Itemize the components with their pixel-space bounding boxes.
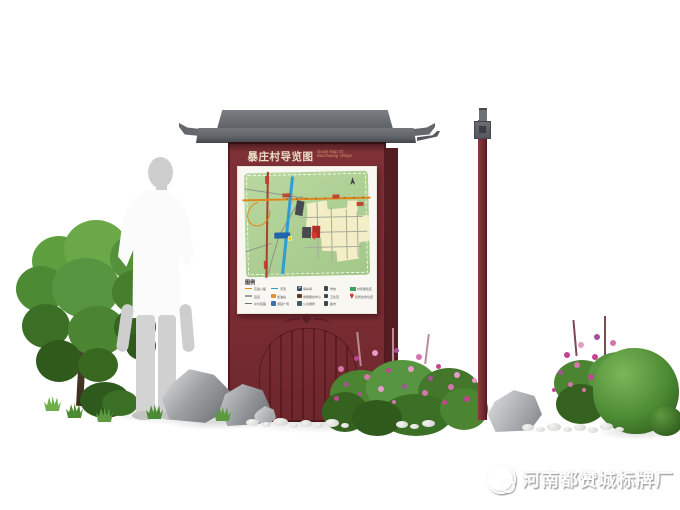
watermark: 河南都赞城标牌厂	[486, 460, 680, 498]
flower-dot	[422, 390, 428, 396]
legend-item: 乡村道路	[245, 301, 268, 306]
pebble	[547, 423, 561, 431]
flower-dot	[594, 334, 600, 340]
legend-item: 村民居住区	[350, 286, 373, 291]
sign-subtitle-en: Guide Map Of Baozhuang Village	[317, 150, 352, 158]
legend-item: 游园广场	[271, 301, 294, 306]
legend-item: 卫生室	[324, 294, 347, 299]
flower-stem	[572, 320, 577, 356]
pebble-row-right	[522, 419, 642, 433]
sign-roof-eave	[196, 128, 416, 143]
flag-pole	[474, 108, 491, 420]
flower-dot	[334, 396, 339, 401]
legend-item: 党群服务中心	[297, 294, 320, 299]
factory-name: 河南都赞城标牌厂	[522, 466, 674, 492]
flower-dot	[394, 348, 399, 353]
legend-swatch-icon-icon	[297, 294, 302, 299]
legend-swatch-icon-icon: P	[297, 286, 302, 291]
flower-dot	[436, 364, 441, 369]
pebble	[615, 427, 624, 432]
pebble	[341, 423, 349, 428]
legend-item: 县道	[245, 294, 268, 299]
legend-item: 高速公路	[245, 286, 268, 291]
person-arm	[179, 304, 195, 353]
legend-column: 高速公路县道乡村道路	[245, 286, 268, 306]
sign-roof-top	[217, 110, 393, 129]
flower-dot	[578, 342, 584, 348]
pebble	[325, 419, 339, 427]
flower-dot	[372, 350, 378, 356]
legend-item: P停车场	[297, 286, 320, 291]
legend-swatch-line-icon	[245, 303, 252, 305]
person-arm	[116, 303, 135, 352]
legend-item: 河流	[271, 286, 294, 291]
logo-inner-circle	[501, 479, 515, 493]
person-shirt	[118, 190, 194, 318]
scene: 暴庄村导览图 Guide Map Of Baozhuang Village	[0, 0, 680, 510]
flower-dot	[364, 374, 370, 380]
pebble	[314, 423, 323, 428]
north-arrow-icon	[350, 177, 355, 185]
flower-dot	[428, 376, 433, 381]
flower-stem	[424, 334, 429, 364]
pebble	[600, 423, 613, 430]
pebble	[563, 427, 572, 432]
flower-dot	[564, 352, 570, 358]
flower-dot	[392, 400, 396, 404]
pebble	[273, 418, 288, 426]
bush-foliage	[649, 406, 680, 436]
ornament-diamond	[302, 314, 312, 324]
legend-column: 学校卫生室超市	[324, 286, 347, 306]
map-panel: 图例 高速公路县道乡村道路河流加油站游园广场P停车场党群服务中心公共厕所学校卫生…	[237, 166, 377, 314]
legend-swatch-icon-icon	[324, 286, 329, 291]
map-road-gray	[267, 236, 279, 275]
cabinet-ornament	[284, 314, 330, 326]
legend-item: 学校	[324, 286, 347, 291]
flower-dot	[354, 356, 359, 361]
legend-swatch-rect-icon	[350, 287, 356, 291]
flower-dot	[416, 354, 422, 360]
legend-column: 河流加油站游园广场	[271, 286, 294, 306]
factory-logo-icon	[486, 464, 516, 494]
pebble	[522, 424, 534, 431]
ornament-curl	[314, 318, 330, 328]
legend-column: 村民居住区您所在的位置	[350, 286, 373, 306]
legend-swatch-icon-icon	[297, 301, 302, 306]
flower-dot	[386, 368, 391, 373]
legend-swatch-pin-icon	[350, 293, 354, 299]
tree-foliage	[36, 340, 82, 382]
pebble	[588, 427, 598, 433]
pebble	[422, 420, 435, 427]
pebble	[300, 420, 312, 427]
legend-swatch-icon-icon	[271, 301, 276, 306]
pebble	[246, 419, 259, 426]
flower-dot	[574, 362, 580, 368]
legend-swatch-icon-icon	[324, 294, 329, 299]
flower-dot	[338, 366, 344, 372]
map-road-label	[332, 194, 339, 198]
flower-dot	[402, 384, 407, 389]
map-road-label	[265, 176, 269, 184]
map-road-label	[264, 261, 268, 269]
legend-swatch-icon-icon	[271, 294, 276, 299]
pebble	[536, 427, 545, 432]
flower-dot	[582, 388, 586, 392]
flower-dot	[552, 388, 556, 392]
pebble-row-center	[246, 415, 446, 429]
legend-swatch-line-icon	[271, 288, 278, 290]
pole-bracket-inset	[479, 126, 486, 133]
flower-dot	[358, 392, 362, 396]
map-dark-block	[302, 227, 311, 238]
legend-swatch-icon-icon	[324, 301, 329, 306]
legend-swatch-line-icon	[245, 288, 252, 290]
flower-dot	[408, 366, 414, 372]
map-road-label	[282, 193, 290, 197]
legend-items: 高速公路县道乡村道路河流加油站游园广场P停车场党群服务中心公共厕所学校卫生室超市…	[245, 286, 373, 306]
flower-dot	[568, 382, 573, 387]
legend-item: 公共厕所	[297, 301, 320, 306]
flower-dot	[558, 370, 563, 375]
pebble	[410, 424, 419, 429]
pole-rod	[478, 120, 487, 420]
pebble	[290, 423, 298, 428]
map-road-label	[357, 202, 364, 206]
pebble	[574, 424, 586, 431]
legend-item: 加油站	[271, 294, 294, 299]
flower-dot	[378, 386, 384, 392]
map-ramp-loop	[242, 197, 275, 231]
pebble	[262, 422, 271, 427]
subtitle-line-2: Baozhuang Village	[317, 154, 352, 158]
flower-dot	[610, 340, 616, 346]
legend-swatch-line-icon	[245, 295, 252, 297]
legend-item: 您所在的位置	[350, 294, 373, 299]
legend-item: 超市	[324, 301, 347, 306]
pebble	[396, 421, 408, 428]
sign-title-row: 暴庄村导览图 Guide Map Of Baozhuang Village	[228, 149, 386, 164]
ornament-curl	[284, 318, 300, 328]
legend-column: P停车场党群服务中心公共厕所	[297, 286, 320, 306]
sign-title: 暴庄村导览图	[248, 149, 314, 164]
map-junction-dot	[288, 236, 292, 240]
flower-dot	[344, 382, 349, 387]
person-leg	[136, 315, 155, 415]
village-map	[244, 171, 370, 278]
pole-bracket	[474, 121, 491, 139]
legend-title: 图例	[245, 278, 255, 286]
